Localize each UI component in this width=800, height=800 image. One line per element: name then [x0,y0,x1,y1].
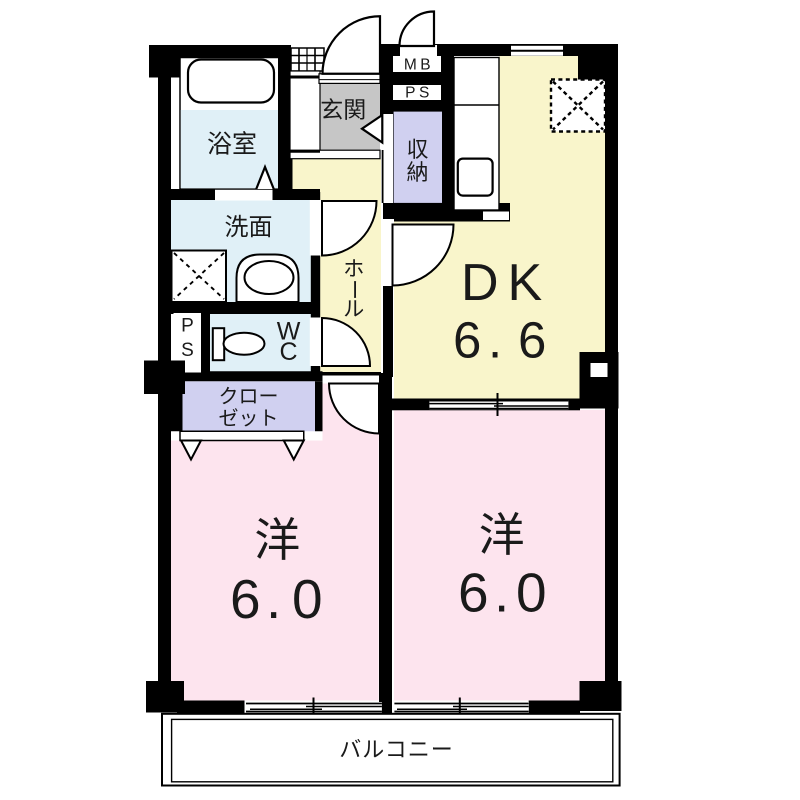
svg-text:ゼット: ゼット [219,407,279,430]
svg-text:D: D [461,254,499,312]
svg-text:C: C [279,338,297,366]
svg-text:.: . [488,312,502,369]
svg-text:クロー: クロー [219,385,279,408]
svg-text:0: 0 [516,562,547,624]
svg-text:ホ: ホ [343,258,364,281]
svg-text:6: 6 [230,568,261,630]
svg-text:ー: ー [342,279,365,300]
svg-text:0: 0 [292,568,323,630]
svg-text:6: 6 [518,312,546,369]
svg-text:S: S [181,340,194,361]
svg-text:6: 6 [458,562,489,624]
svg-text:.: . [266,568,281,630]
svg-text:6: 6 [453,312,481,369]
svg-text:PS: PS [405,85,433,102]
svg-text:P: P [181,316,194,337]
svg-text:浴室: 浴室 [207,131,257,159]
svg-text:納: 納 [406,160,428,185]
svg-text:ル: ル [343,298,364,321]
svg-text:洗面: 洗面 [225,214,273,241]
svg-text:MB: MB [404,57,434,74]
svg-text:洋: 洋 [254,514,300,566]
svg-text:バルコニー: バルコニー [339,737,454,762]
svg-text:K: K [508,254,543,312]
svg-text:収: 収 [406,137,428,162]
svg-text:.: . [494,562,509,624]
svg-text:洋: 洋 [479,509,525,561]
svg-text:玄関: 玄関 [320,97,366,123]
